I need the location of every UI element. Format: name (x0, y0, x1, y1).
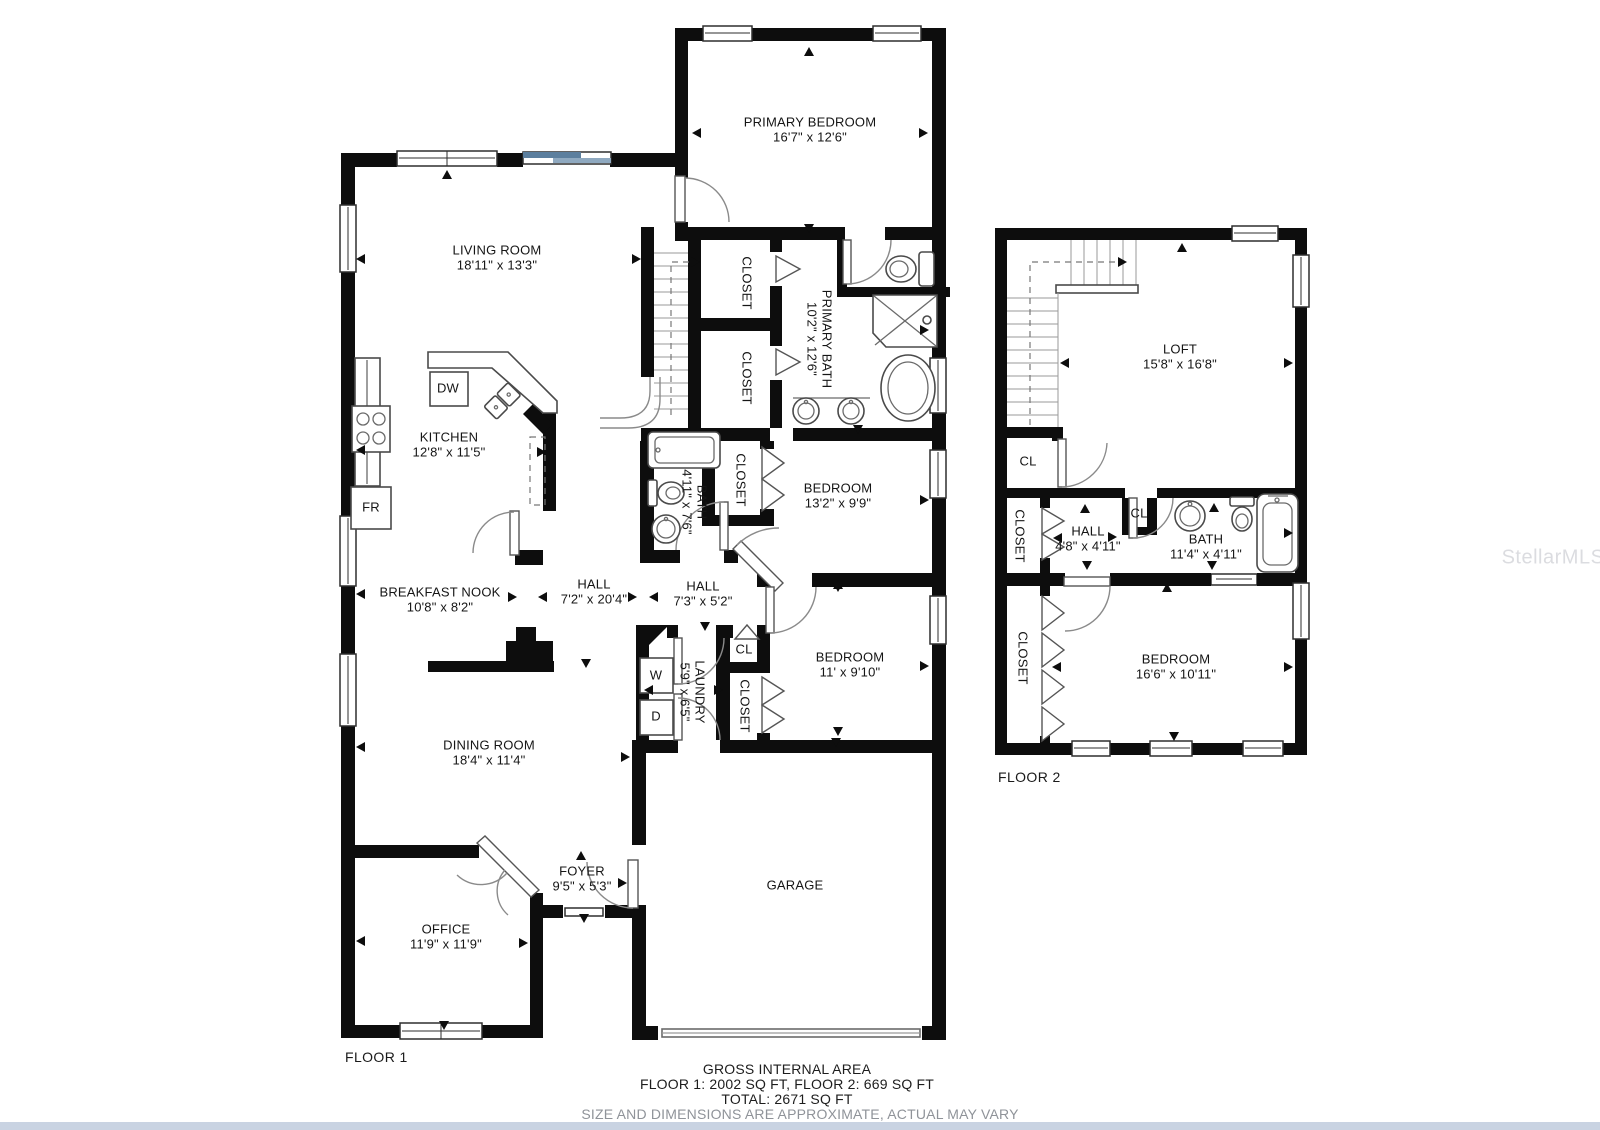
shower (873, 295, 937, 347)
appliance-label-washer: W (650, 669, 662, 684)
window (400, 1023, 482, 1039)
closet-bifold (735, 625, 759, 639)
room-label-kitchen: KITCHEN12'8" x 11'5" (413, 430, 486, 459)
closet-bifold (776, 256, 800, 282)
window (703, 26, 752, 41)
floor1-label: FLOOR 1 (345, 1049, 408, 1065)
floor-plan-page: PRIMARY BEDROOM16'7" x 12'6" LIVING ROOM… (0, 0, 1600, 1130)
room-label-foyer: FOYER9'5" x 5'3" (552, 864, 611, 893)
vanity-sinks (793, 398, 870, 424)
room-label-dining-room: DINING ROOM18'4" x 11'4" (443, 738, 535, 767)
closet-label: CLOSET (739, 256, 754, 309)
room-label-bedroom-b: BEDROOM11' x 9'10" (816, 650, 885, 679)
pantry (530, 437, 545, 505)
room-label-bedroom2: BEDROOM16'6" x 10'11" (1136, 652, 1216, 681)
door-loft-closet (1058, 439, 1107, 487)
appliance-label-dishwasher: DW (437, 382, 459, 397)
footer-floor-areas: FLOOR 1: 2002 SQ FT, FLOOR 2: 669 SQ FT (640, 1076, 934, 1092)
window (340, 205, 356, 272)
closet-label: CLOSET (733, 453, 748, 506)
bathtub-small (648, 432, 720, 468)
floor-plan-drawing (0, 0, 1600, 1130)
sink-small (652, 515, 680, 543)
window (930, 450, 946, 498)
floor2-staircase (1007, 240, 1138, 427)
door-primary-bedroom (675, 176, 729, 222)
sliding-door (523, 152, 611, 164)
sink2 (1175, 501, 1205, 531)
door-bedroom2 (1064, 577, 1110, 631)
garage-door (658, 1026, 922, 1040)
closet-label-cl: CL (1019, 455, 1036, 470)
window (873, 26, 921, 41)
room-label-hall2: HALL4'8" x 4'11" (1055, 524, 1121, 553)
door-bedroom-b (766, 587, 816, 633)
pass-window (1211, 574, 1257, 585)
window (930, 596, 946, 644)
floor2-label: FLOOR 2 (998, 769, 1061, 785)
floor1-doors (457, 176, 891, 915)
room-label-hall-small: HALL7'3" x 5'2" (673, 579, 732, 608)
room-label-primary-bedroom: PRIMARY BEDROOM16'7" x 12'6" (744, 115, 877, 144)
footer-total-area: TOTAL: 2671 SQ FT (721, 1091, 852, 1107)
window (340, 654, 356, 726)
dimension-arrows (356, 47, 1293, 1030)
door-water-closet (843, 240, 891, 284)
room-label-garage: GARAGE (767, 879, 824, 894)
stove (352, 406, 390, 452)
window (1150, 741, 1192, 756)
room-label-primary-bath: PRIMARY BATH10'2" x 12'6" (804, 290, 833, 388)
watermark: StellarMLS (1502, 547, 1600, 570)
room-label-living-room: LIVING ROOM18'11" x 13'3" (453, 243, 542, 272)
footer-gross-area: GROSS INTERNAL AREA (703, 1061, 871, 1077)
room-label-bath2: BATH11'4" x 4'11" (1170, 532, 1242, 561)
room-label-loft: LOFT15'8" x 16'8" (1143, 342, 1217, 371)
floor2-doors (1042, 439, 1173, 741)
window (1072, 741, 1110, 756)
closet-bifold (762, 677, 784, 733)
window (1293, 583, 1309, 639)
closet-label-cl: CL (735, 643, 752, 658)
room-label-laundry: LAUNDRY5'9" x 6'5" (677, 660, 706, 723)
closet-bifold (776, 349, 800, 375)
closet-label: CLOSET (737, 679, 752, 732)
room-label-office: OFFICE11'9" x 11'9" (410, 922, 482, 951)
window (1232, 226, 1278, 241)
door-kitchen (473, 511, 519, 555)
appliance-label-dryer: D (651, 710, 661, 725)
room-label-bedroom-a: BEDROOM13'2" x 9'9" (804, 481, 873, 510)
closet-label: CLOSET (739, 351, 754, 404)
window (397, 151, 497, 166)
room-label-bath: BATH4'11" x 7'6" (679, 469, 708, 535)
closet-label: CLOSET (1015, 631, 1030, 684)
window (1293, 255, 1309, 307)
closet-label-cl: CL (1130, 507, 1147, 522)
bottom-edge-strip (0, 1122, 1600, 1130)
toilet (886, 252, 934, 286)
closet-bifold (762, 447, 784, 511)
appliance-label-fridge: FR (362, 501, 380, 516)
closet-label: CLOSET (1012, 509, 1027, 562)
floor1-walls (341, 28, 950, 1040)
room-label-hall-main: HALL7'2" x 20'4" (561, 577, 627, 606)
toilet2 (1230, 497, 1254, 531)
bathtub (881, 355, 935, 421)
window (1243, 741, 1283, 756)
footer-disclaimer: SIZE AND DIMENSIONS ARE APPROXIMATE, ACT… (581, 1106, 1018, 1122)
room-label-breakfast-nook: BREAKFAST NOOK10'8" x 8'2" (379, 585, 500, 614)
